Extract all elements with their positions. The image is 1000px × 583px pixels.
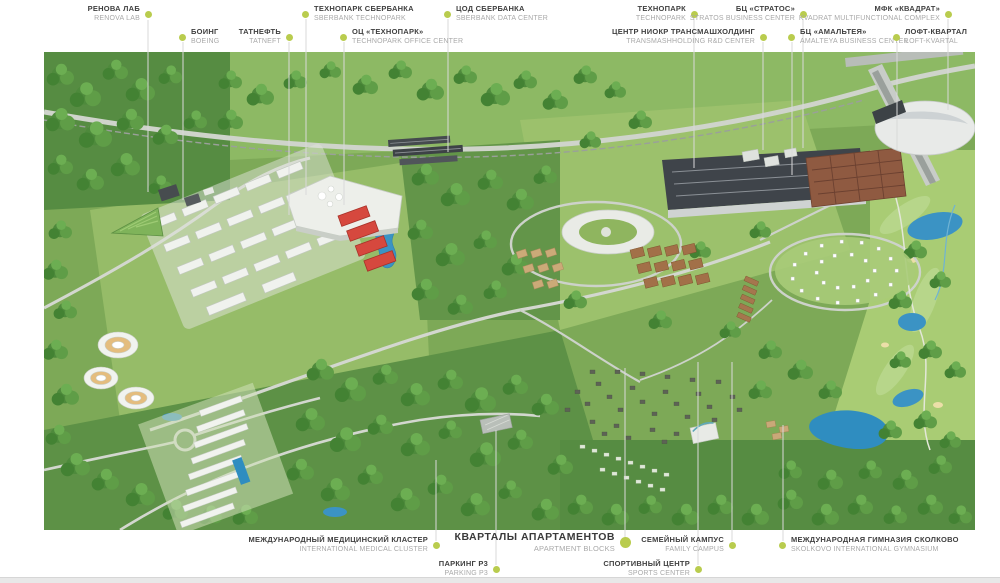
label-en: FAMILY CAMPUS <box>641 545 724 554</box>
map-label-boeing: БОИНГBOEING <box>179 27 219 46</box>
label-en: SKOLKOVO INTERNATIONAL GYMNASIUM <box>791 545 959 554</box>
label-ru: СЕМЕЙНЫЙ КАМПУС <box>641 535 724 545</box>
label-dot <box>340 34 347 41</box>
label-en: RENOVA LAB <box>88 14 140 23</box>
label-dot <box>493 566 500 573</box>
viewer-edge-bar <box>0 577 1000 583</box>
label-dot <box>695 566 702 573</box>
loft-brick-complex <box>806 148 906 207</box>
label-dot <box>286 34 293 41</box>
map-label-apartment-blocks: КВАРТАЛЫ АПАРТАМЕНТОВAPARTMENT BLOCKS <box>455 531 631 553</box>
map-label-parking-p3: ПАРКИНГ Р3PARKING P3 <box>439 559 500 578</box>
map-label-sberbank-data-center: ЦОД СБЕРБАНКАSBERBANK DATA CENTER <box>444 4 548 23</box>
label-en: INTERNATIONAL MEDICAL CLUSTER <box>249 545 428 554</box>
label-ru: ТЕХНОПАРК СБЕРБАНКА <box>314 4 414 14</box>
label-ru: ЦЕНТР НИОКР ТРАНСМАШХОЛДИНГ <box>612 27 755 37</box>
label-dot <box>444 11 451 18</box>
label-en: BOEING <box>191 37 219 46</box>
map-label-medical-cluster: МЕЖДУНАРОДНЫЙ МЕДИЦИНСКИЙ КЛАСТЕРINTERNA… <box>249 535 440 554</box>
label-dot <box>788 34 795 41</box>
label-en: TECHNOPARK OFFICE CENTER <box>352 37 463 46</box>
map-label-kvadrat: МФК «КВАДРАТ»KVADRAT MULTIFUNCTIONAL COM… <box>799 4 952 23</box>
label-ru: ПАРКИНГ Р3 <box>439 559 488 569</box>
label-ru: МЕЖДУНАРОДНАЯ ГИМНАЗИЯ СКОЛКОВО <box>791 535 959 545</box>
label-ru: ЛОФТ-КВАРТАЛ <box>905 27 967 37</box>
aerial-map-render <box>44 52 975 530</box>
label-dot <box>302 11 309 18</box>
label-en: SBERBANK DATA CENTER <box>456 14 548 23</box>
map-label-family-campus: СЕМЕЙНЫЙ КАМПУСFAMILY CAMPUS <box>641 535 736 554</box>
masterplan-page: РЕНОВА ЛАБRENOVA LAB ТЕХНОПАРК СБЕРБАНКА… <box>0 0 1000 583</box>
label-ru: БОИНГ <box>191 27 219 37</box>
label-en: KVADRAT MULTIFUNCTIONAL COMPLEX <box>799 14 940 23</box>
label-dot <box>179 34 186 41</box>
map-label-transmashholding: ЦЕНТР НИОКР ТРАНСМАШХОЛДИНГTRANSMASHHOLD… <box>612 27 767 46</box>
map-label-stratos: БЦ «СТРАТОС»STRATOS BUSINESS CENTER <box>690 4 807 23</box>
label-ru: МЕЖДУНАРОДНЫЙ МЕДИЦИНСКИЙ КЛАСТЕР <box>249 535 428 545</box>
label-ru: ОЦ «ТЕХНОПАРК» <box>352 27 463 37</box>
label-en: SPORTS CENTER <box>603 569 690 578</box>
label-ru: БЦ «СТРАТОС» <box>690 4 795 14</box>
map-label-sberbank-technopark: ТЕХНОПАРК СБЕРБАНКАSBERBANK TECHNOPARK <box>302 4 414 23</box>
label-en: APARTMENT BLOCKS <box>455 544 615 553</box>
label-ru: ТАТНЕФТЬ <box>239 27 281 37</box>
map-label-technopark: ТЕХНОПАРКTECHNOPARK <box>636 4 698 23</box>
label-dot <box>779 542 786 549</box>
label-en: TATNEFT <box>239 37 281 46</box>
label-en: TECHNOPARK <box>636 14 686 23</box>
cottage-circle <box>775 237 915 305</box>
map-label-sports-center: СПОРТИВНЫЙ ЦЕНТРSPORTS CENTER <box>603 559 702 578</box>
map-label-loft-kvartal: ЛОФТ-КВАРТАЛLOFT-KVARTAL <box>893 27 967 46</box>
label-ru: МФК «КВАДРАТ» <box>799 4 940 14</box>
label-dot <box>945 11 952 18</box>
map-label-renova-lab: РЕНОВА ЛАБRENOVA LAB <box>88 4 152 23</box>
label-en: LOFT-KVARTAL <box>905 37 967 46</box>
label-ru: КВАРТАЛЫ АПАРТАМЕНТОВ <box>455 531 615 544</box>
label-dot <box>145 11 152 18</box>
label-en: SBERBANK TECHNOPARK <box>314 14 414 23</box>
label-dot <box>760 34 767 41</box>
label-en: STRATOS BUSINESS CENTER <box>690 14 795 23</box>
label-en: TRANSMASHHOLDING R&D CENTER <box>612 37 755 46</box>
map-label-gymnasium: МЕЖДУНАРОДНАЯ ГИМНАЗИЯ СКОЛКОВОSKOLKOVO … <box>779 535 959 554</box>
label-dot <box>433 542 440 549</box>
label-ru: ЦОД СБЕРБАНКА <box>456 4 548 14</box>
map-label-tatneft: ТАТНЕФТЬTATNEFT <box>239 27 293 46</box>
label-en: PARKING P3 <box>439 569 488 578</box>
label-dot <box>893 34 900 41</box>
map-label-technopark-office-center: ОЦ «ТЕХНОПАРК»TECHNOPARK OFFICE CENTER <box>340 27 463 46</box>
label-dot <box>729 542 736 549</box>
label-ru: ТЕХНОПАРК <box>636 4 686 14</box>
label-ru: РЕНОВА ЛАБ <box>88 4 140 14</box>
label-ru: СПОРТИВНЫЙ ЦЕНТР <box>603 559 690 569</box>
map-label-amalteya: БЦ «АМАЛЬТЕЯ»AMALTEYA BUSINESS CENTER <box>788 27 909 46</box>
label-dot <box>620 537 631 548</box>
